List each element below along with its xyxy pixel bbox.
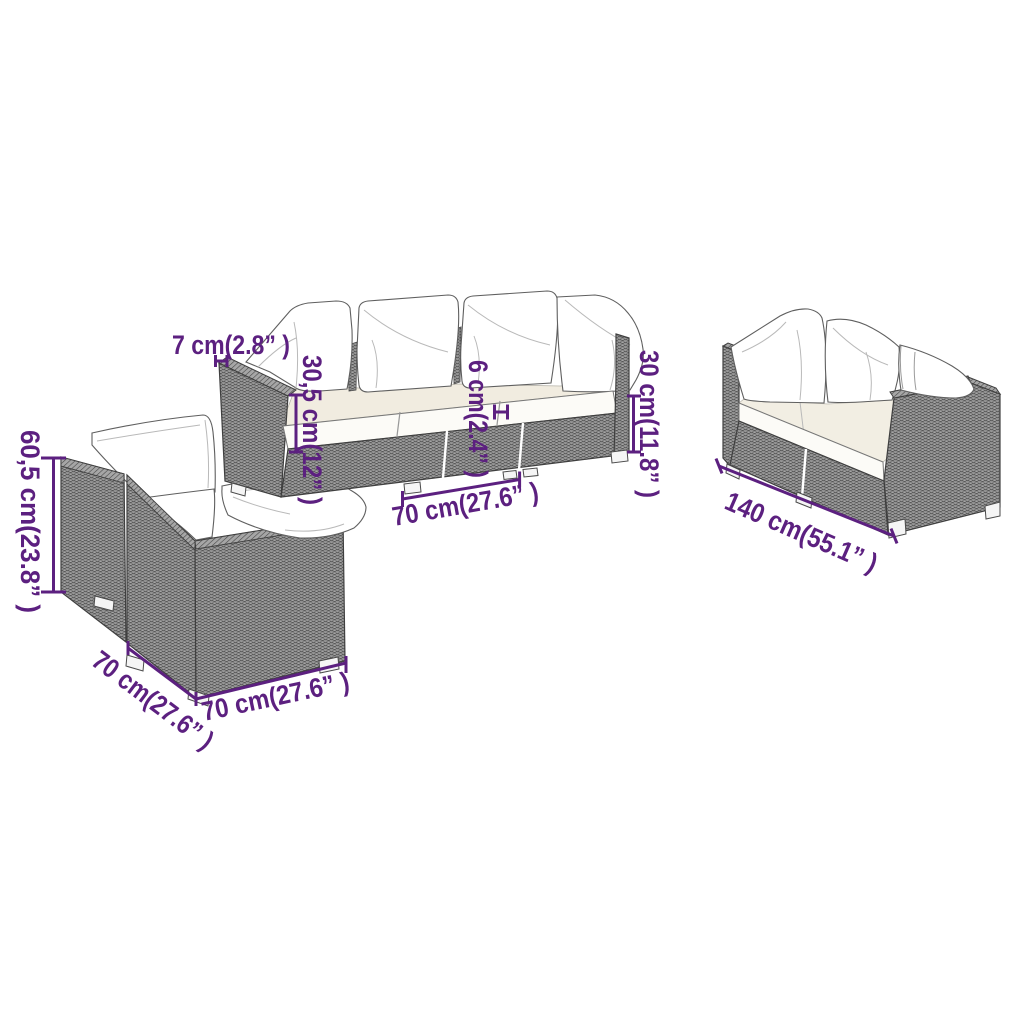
svg-text:30 cm(11.8” ): 30 cm(11.8” ) [634,350,664,498]
svg-text:30,5 cm(12” ): 30,5 cm(12” ) [297,355,327,505]
svg-text:6 cm(2.4” ): 6 cm(2.4” ) [463,360,493,478]
svg-text:60,5 cm(23.8” ): 60,5 cm(23.8” ) [15,430,45,613]
svg-text:7 cm(2.8” ): 7 cm(2.8” ) [172,330,290,360]
